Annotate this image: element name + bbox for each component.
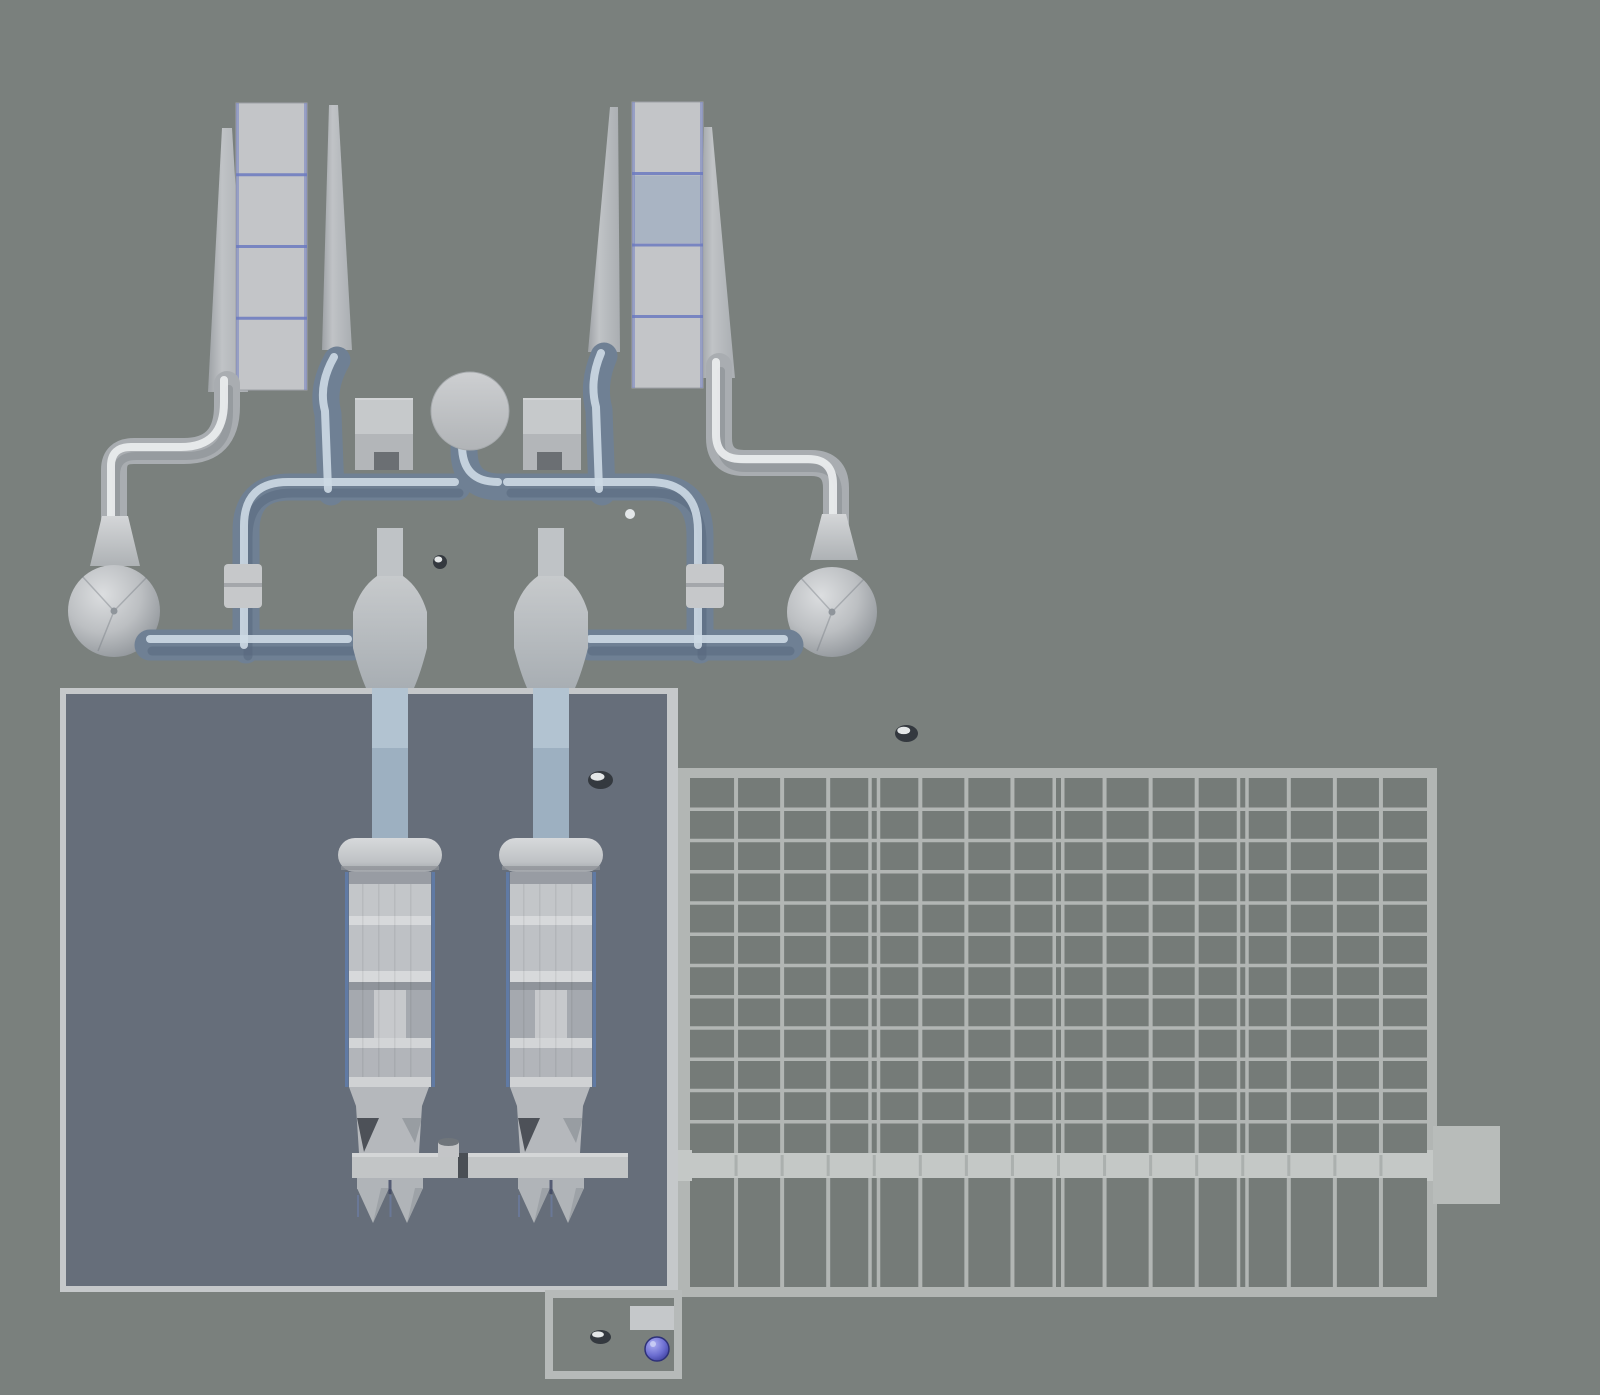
- pipe-clamps: [224, 564, 724, 608]
- vessel-band: [510, 916, 592, 925]
- duct-lower: [372, 748, 408, 844]
- beam-seam: [781, 1155, 784, 1176]
- vessel-edge: [593, 872, 597, 1087]
- metal-pipe-right-shade: [721, 371, 838, 527]
- grid-vline: [1149, 778, 1153, 1287]
- vessel-band: [349, 982, 431, 990]
- grid-vline: [1287, 778, 1291, 1287]
- tower-segmented-panels: [236, 102, 703, 390]
- metal-pipe-right: [719, 366, 836, 522]
- sphere-right-hub: [829, 609, 836, 616]
- feed-bin-right[interactable]: [523, 398, 581, 470]
- grid-vline: [1237, 778, 1241, 1287]
- vessel-band: [349, 1038, 431, 1048]
- cone-edge-blue: [390, 1195, 392, 1217]
- vessel-seam: [410, 884, 412, 1077]
- funnel-bulb: [353, 576, 427, 688]
- fitting-highlight: [592, 1331, 604, 1337]
- vessel-crossbars: [352, 1153, 628, 1178]
- small-cylinder-fitting: [438, 1138, 459, 1157]
- crossbar-seam: [458, 1153, 468, 1178]
- grid-vline: [1245, 778, 1249, 1287]
- bin-right-gate: [537, 452, 562, 470]
- vessel-seam: [571, 884, 573, 1077]
- grid-hline: [690, 901, 1427, 905]
- fitting-highlight: [897, 727, 910, 734]
- tower-panel-divider: [236, 317, 307, 320]
- duct-upper: [372, 686, 408, 748]
- tower-left-inner-pillar: [322, 105, 352, 350]
- cone-edge-blue: [518, 1195, 520, 1217]
- vessel-cap-shadow: [502, 866, 600, 870]
- cone-edge-blue: [551, 1195, 553, 1217]
- tower-panel-blue-segment: [634, 176, 701, 244]
- crossbar-edge: [468, 1153, 628, 1157]
- beam-seam: [1103, 1155, 1106, 1176]
- beam-seam: [1149, 1155, 1152, 1176]
- tower-panel-divider: [632, 244, 703, 247]
- circular-holding-tank[interactable]: [431, 372, 509, 450]
- duct-lower: [533, 748, 569, 844]
- vessel-band: [349, 1048, 431, 1077]
- beam-seam: [919, 1155, 922, 1176]
- cone-gap: [389, 1180, 392, 1194]
- tower-panel-edge: [632, 102, 635, 388]
- vessel-band: [510, 971, 592, 982]
- vessel-band: [349, 884, 431, 916]
- funnel-stem: [538, 528, 564, 580]
- grid-vline: [1010, 778, 1014, 1287]
- vessel-edge: [345, 872, 349, 1087]
- model-viewport[interactable]: [0, 0, 1600, 1395]
- metal-pipe-right-highlight: [716, 362, 833, 518]
- vessel-cap-shadow: [341, 866, 439, 870]
- grid-vline: [1053, 778, 1057, 1287]
- beam-seam: [1195, 1155, 1198, 1176]
- tower-panel-edge: [304, 103, 307, 390]
- funnel-stem: [377, 528, 403, 580]
- grid-hline: [690, 964, 1427, 968]
- transfer-funnels: [353, 528, 588, 688]
- channel-tab-right[interactable]: [1433, 1126, 1500, 1204]
- grid-hline: [690, 933, 1427, 937]
- grid-vline: [877, 778, 881, 1287]
- beam-seam: [735, 1155, 738, 1176]
- grid-vline: [918, 778, 922, 1287]
- cone-edge-blue: [357, 1195, 359, 1217]
- valve-orb[interactable]: [645, 1337, 669, 1361]
- vessel-seam: [539, 884, 541, 1077]
- vessel-band: [349, 872, 431, 884]
- grid-vline: [1333, 778, 1337, 1287]
- grid-vline: [1061, 778, 1065, 1287]
- beam-seam: [1287, 1155, 1290, 1176]
- cone-gap: [550, 1180, 553, 1194]
- vessel-seam: [378, 884, 380, 1077]
- tower-panel-divider: [632, 315, 703, 318]
- tower-right-inner-pillar: [588, 107, 620, 352]
- grid-vline: [1379, 778, 1383, 1287]
- grid-vline: [1195, 778, 1199, 1287]
- grid-vline: [734, 778, 738, 1287]
- grid-vline: [780, 778, 784, 1287]
- tower-panel-edge: [700, 102, 703, 388]
- tower-panel-divider: [236, 245, 307, 248]
- vessel-seam: [555, 884, 557, 1077]
- tower-panel-divider: [632, 172, 703, 175]
- grid-hline: [690, 995, 1427, 999]
- grid-hline: [690, 808, 1427, 812]
- grid-vline: [868, 778, 872, 1287]
- outlet-gate-panel: [630, 1306, 674, 1330]
- sphere-right-neck: [810, 514, 858, 560]
- vessel-band: [510, 1038, 592, 1048]
- beam-seam: [1057, 1155, 1060, 1176]
- vessel-band: [349, 971, 431, 982]
- fitting-highlight: [591, 773, 605, 781]
- vessel-band: [510, 982, 592, 990]
- vessel-seam: [523, 884, 525, 1077]
- bin-left-top: [355, 400, 413, 434]
- beam-seam: [1241, 1155, 1244, 1176]
- plant-3d-scene: [0, 0, 1600, 1395]
- sphere-left-hub: [111, 608, 118, 615]
- grid-cross-beam: [690, 1153, 1427, 1178]
- grid-hline: [690, 839, 1427, 843]
- feed-bin-left[interactable]: [355, 398, 413, 470]
- tower-right-outer-pillar: [700, 127, 735, 378]
- outlet-chamber[interactable]: [545, 1290, 682, 1379]
- vessel-band: [349, 925, 431, 971]
- vessel-edge: [506, 872, 510, 1087]
- grid-hline: [690, 1120, 1427, 1124]
- grid-hline: [690, 1089, 1427, 1093]
- filter-grid-basin[interactable]: [678, 768, 1437, 1297]
- bin-left-gate: [374, 452, 399, 470]
- beam-seam: [1379, 1155, 1382, 1176]
- fitting-highlight: [434, 556, 442, 562]
- beam-seam: [965, 1155, 968, 1176]
- grid-hline: [690, 1058, 1427, 1062]
- bin-right-top: [523, 400, 581, 434]
- beam-seam: [1011, 1155, 1014, 1176]
- vessel-band: [349, 916, 431, 925]
- funnel-bulb: [514, 576, 588, 688]
- tower-panel-edge: [236, 103, 239, 390]
- sphere-tank-right[interactable]: [787, 514, 877, 657]
- vessel-seam: [394, 884, 396, 1077]
- beam-seam: [873, 1155, 876, 1176]
- grid-hline: [690, 1026, 1427, 1030]
- beam-seam: [827, 1155, 830, 1176]
- vessel-band: [510, 1077, 592, 1087]
- grid-vline: [826, 778, 830, 1287]
- grid-hline: [690, 870, 1427, 874]
- vessel-seam: [362, 884, 364, 1077]
- beam-seam: [1333, 1155, 1336, 1176]
- grid-vline: [1103, 778, 1107, 1287]
- vessel-band: [510, 1048, 592, 1077]
- tower-panel-divider: [236, 173, 307, 176]
- sphere-left-neck: [90, 516, 140, 566]
- valve-orb-glint: [650, 1341, 656, 1347]
- vessel-edge: [432, 872, 436, 1087]
- grid-vline: [964, 778, 968, 1287]
- holding-tank-roof: [431, 372, 509, 450]
- grid-floor: [690, 778, 1427, 1287]
- vessel-band: [510, 872, 592, 884]
- duct-upper: [533, 686, 569, 748]
- vessel-band: [510, 925, 592, 971]
- vessel-band: [510, 884, 592, 916]
- vessel-band: [349, 1077, 431, 1087]
